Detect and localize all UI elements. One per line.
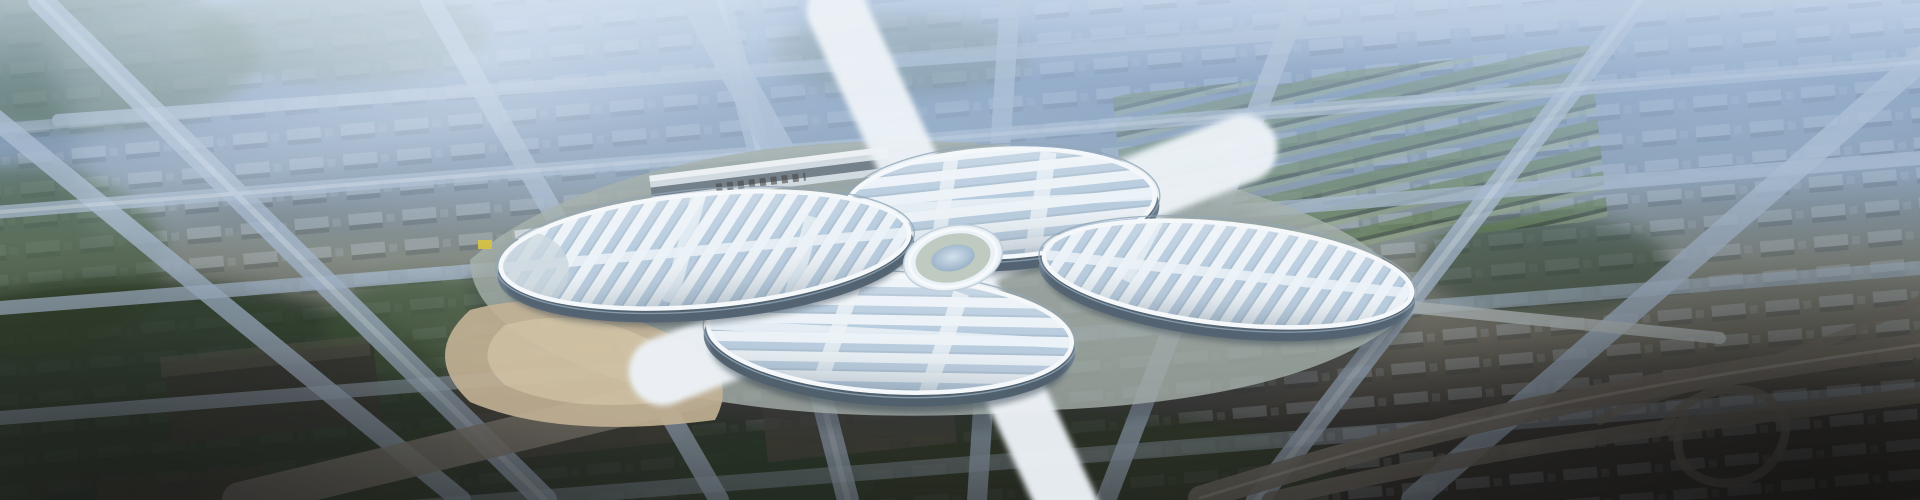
aerial-city-rendering — [0, 0, 1920, 500]
hero-banner — [0, 0, 1920, 500]
